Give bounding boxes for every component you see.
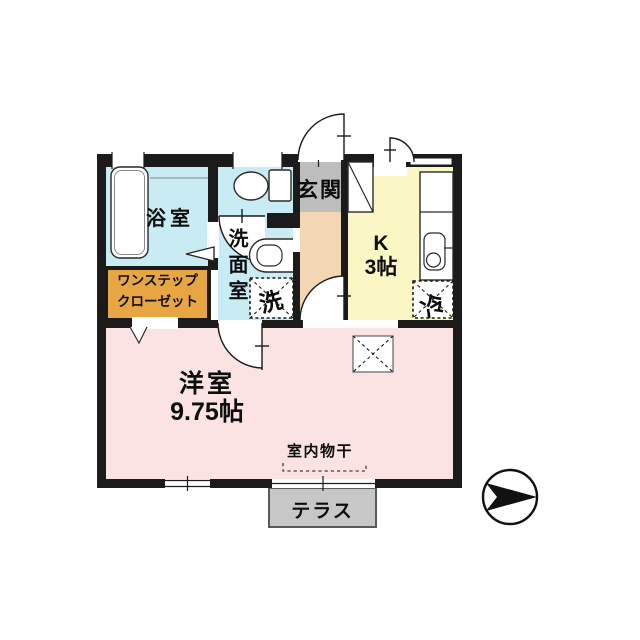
terrace-label: テラス bbox=[268, 496, 377, 523]
hallway-door bbox=[300, 276, 351, 320]
closet-door bbox=[130, 317, 178, 343]
closet-label-line1: ワンステップ bbox=[108, 271, 207, 292]
terrace-sliding-door bbox=[272, 476, 375, 491]
fixtures-layer bbox=[0, 0, 640, 640]
main-room-label-line1: 洋室 bbox=[117, 371, 297, 399]
shoe-cabinet bbox=[348, 162, 373, 212]
compass-arrow bbox=[483, 470, 537, 524]
indoor-drying-rail bbox=[283, 463, 366, 471]
kitchen-service-door bbox=[384, 138, 414, 162]
closet-label: ワンステップ クローゼット bbox=[108, 271, 207, 313]
main-room-label: 洋室 9.75帖 bbox=[117, 371, 297, 426]
kitchen-window bbox=[410, 158, 452, 165]
closet-label-line2: クローゼット bbox=[108, 292, 207, 313]
toilet bbox=[234, 170, 291, 201]
washbasin-sink bbox=[250, 239, 293, 272]
main-room-door bbox=[218, 323, 269, 370]
bathroom-label: 浴室 bbox=[146, 202, 210, 231]
floor-plan: 浴室 ワンステップ クローゼット 洗面室 洗 玄関 K 3帖 冷 洋室 9.75… bbox=[0, 0, 640, 640]
kitchen-label: K 3帖 bbox=[352, 232, 410, 280]
main-room-window bbox=[165, 476, 210, 491]
drying-label: 室内物干 bbox=[287, 440, 353, 461]
ceiling-hatch bbox=[353, 336, 393, 372]
entrance-label: 玄関 bbox=[297, 174, 343, 204]
washroom-label: 洗面室 bbox=[222, 228, 251, 324]
main-room-label-line2: 9.75帖 bbox=[117, 399, 297, 427]
kitchen-label-line2: 3帖 bbox=[352, 256, 410, 280]
entrance-door bbox=[298, 114, 351, 160]
kitchen-label-line1: K bbox=[352, 232, 410, 256]
toilet-window bbox=[233, 152, 282, 169]
kitchen-counter-sink bbox=[420, 172, 453, 280]
